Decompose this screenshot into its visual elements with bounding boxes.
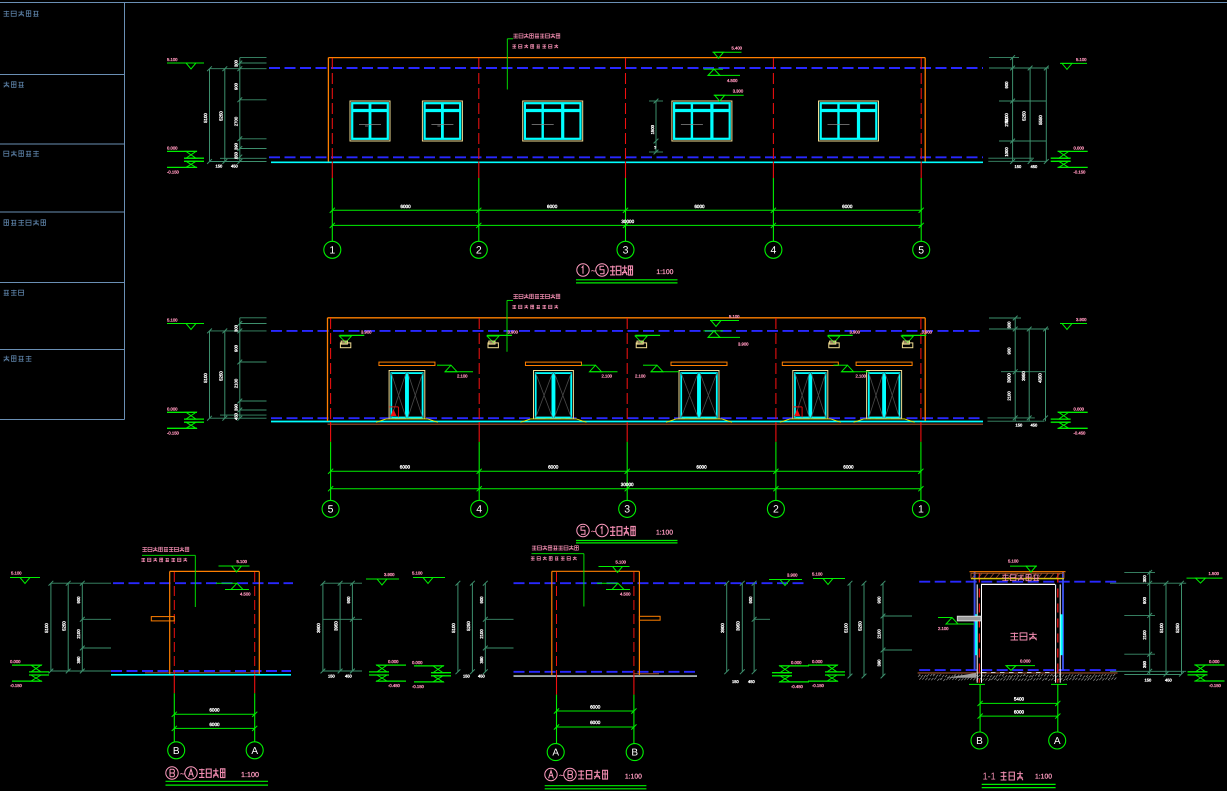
svg-text:450: 450 (1165, 678, 1172, 683)
svg-text:2.100: 2.100 (635, 374, 646, 379)
svg-text:1-1: 1-1 (983, 772, 996, 783)
svg-text:3950: 3950 (736, 621, 741, 631)
svg-text:150: 150 (463, 674, 470, 679)
svg-text:3900: 3900 (316, 623, 321, 633)
svg-text:900: 900 (1007, 347, 1012, 355)
svg-text:2: 2 (773, 504, 779, 516)
svg-text:2.100: 2.100 (602, 374, 613, 379)
svg-text:3: 3 (624, 504, 630, 516)
svg-text:3.900: 3.900 (361, 329, 372, 334)
svg-text:2.100: 2.100 (457, 374, 468, 379)
svg-text:5.100: 5.100 (1076, 57, 1087, 62)
svg-text:5.100: 5.100 (11, 571, 22, 576)
svg-text:3.900: 3.900 (738, 342, 749, 347)
svg-text:3: 3 (623, 245, 629, 257)
svg-text:3900: 3900 (1007, 373, 1012, 383)
svg-text:5400: 5400 (1014, 697, 1025, 702)
svg-text:150: 150 (328, 674, 335, 679)
svg-text:900: 900 (234, 82, 239, 90)
svg-text:0.000: 0.000 (1020, 659, 1031, 664)
svg-text:900: 900 (234, 344, 239, 352)
svg-text:1: 1 (918, 504, 924, 516)
svg-text:5: 5 (918, 245, 924, 257)
svg-text:5100: 5100 (44, 623, 49, 633)
svg-text:150: 150 (1016, 422, 1023, 427)
svg-text:5.100: 5.100 (1008, 559, 1019, 564)
svg-text:-0.150: -0.150 (1209, 683, 1222, 688)
svg-text:900: 900 (1142, 596, 1147, 604)
svg-text:450: 450 (1031, 164, 1038, 169)
svg-text:2700: 2700 (234, 116, 239, 126)
svg-text:150: 150 (1015, 164, 1022, 169)
svg-text:6000: 6000 (694, 204, 705, 209)
svg-text:4.500: 4.500 (240, 592, 251, 597)
svg-text:3.900: 3.900 (1076, 317, 1087, 322)
svg-text:3950: 3950 (334, 621, 339, 631)
svg-text:5250: 5250 (858, 621, 863, 631)
svg-text:1:100: 1:100 (656, 269, 673, 276)
svg-text:2700: 2700 (1004, 117, 1009, 127)
svg-text:450: 450 (345, 674, 352, 679)
svg-text:30000: 30000 (621, 219, 634, 224)
svg-text:0.000: 0.000 (412, 660, 423, 665)
svg-text:390: 390 (877, 659, 882, 667)
svg-text:1:100: 1:100 (241, 770, 259, 779)
svg-text:450: 450 (478, 674, 485, 679)
svg-text:0.000: 0.000 (1209, 659, 1220, 664)
svg-text:4.500: 4.500 (727, 78, 738, 83)
svg-text:5550: 5550 (1038, 115, 1043, 125)
svg-text:1500: 1500 (650, 124, 655, 134)
svg-text:5.100: 5.100 (167, 318, 178, 323)
svg-text:~: ~ (180, 770, 185, 779)
svg-text:3.900: 3.900 (922, 329, 933, 334)
svg-text:150: 150 (1145, 678, 1152, 683)
svg-text:0.000: 0.000 (388, 659, 399, 664)
svg-text:6000: 6000 (842, 204, 853, 209)
svg-text:5.100: 5.100 (412, 571, 423, 576)
svg-text:150: 150 (216, 164, 223, 169)
svg-text:6000: 6000 (590, 704, 601, 709)
svg-text:2100: 2100 (234, 378, 239, 388)
svg-text:5250: 5250 (219, 371, 224, 381)
svg-text:0.000: 0.000 (167, 406, 178, 411)
svg-text:300: 300 (234, 59, 239, 67)
svg-text:0.000: 0.000 (1074, 406, 1085, 411)
svg-text:1000: 1000 (1004, 147, 1009, 157)
svg-text:390: 390 (234, 403, 239, 411)
svg-text:6000: 6000 (400, 465, 411, 470)
svg-text:3.900: 3.900 (850, 329, 861, 334)
svg-text:5.100: 5.100 (812, 572, 823, 577)
svg-text:300: 300 (1142, 575, 1147, 583)
svg-text:450: 450 (748, 679, 755, 684)
svg-text:150: 150 (732, 679, 739, 684)
svg-text:0.000: 0.000 (1074, 145, 1085, 150)
svg-text:6000: 6000 (547, 204, 558, 209)
svg-text:3.900: 3.900 (384, 572, 395, 577)
svg-text:900: 900 (479, 596, 484, 604)
svg-text:0.000: 0.000 (812, 659, 823, 664)
svg-text:0.000: 0.000 (10, 659, 21, 664)
svg-text:390: 390 (1142, 660, 1147, 668)
svg-text:-0.150: -0.150 (412, 684, 425, 689)
svg-text:2100: 2100 (76, 629, 81, 639)
svg-text:2: 2 (476, 245, 482, 257)
svg-text:5100: 5100 (844, 623, 849, 633)
svg-text:5: 5 (328, 504, 334, 516)
svg-text:5250: 5250 (466, 621, 471, 631)
svg-text:6000: 6000 (400, 204, 411, 209)
svg-text:2.100: 2.100 (856, 374, 867, 379)
svg-text:5.100: 5.100 (616, 560, 627, 565)
svg-text:300: 300 (234, 324, 239, 332)
svg-text:390: 390 (479, 656, 484, 664)
svg-text:5.400: 5.400 (732, 46, 743, 51)
svg-text:3900: 3900 (720, 623, 725, 633)
svg-text:2.100: 2.100 (938, 626, 949, 631)
svg-text:1:100: 1:100 (656, 530, 673, 537)
svg-text:3.900: 3.900 (787, 573, 798, 578)
svg-text:2100: 2100 (1142, 630, 1147, 640)
svg-text:5250: 5250 (219, 111, 224, 121)
svg-text:1:100: 1:100 (1035, 774, 1052, 781)
svg-text:A: A (1054, 736, 1061, 747)
svg-text:5100: 5100 (1159, 623, 1164, 633)
svg-text:6000: 6000 (209, 722, 220, 727)
svg-text:4350: 4350 (1038, 373, 1043, 383)
svg-text:-0.450: -0.450 (388, 683, 401, 688)
svg-text:5.100: 5.100 (729, 314, 740, 319)
svg-text:450: 450 (1031, 422, 1038, 427)
svg-text:1:100: 1:100 (625, 774, 642, 781)
svg-text:390: 390 (234, 142, 239, 150)
svg-text:6000: 6000 (209, 708, 220, 713)
svg-text:5250: 5250 (62, 621, 67, 631)
svg-text:3.900: 3.900 (508, 329, 519, 334)
svg-text:390: 390 (76, 656, 81, 664)
svg-text:3950: 3950 (1021, 371, 1026, 381)
svg-text:900: 900 (748, 596, 753, 604)
svg-text:850: 850 (234, 151, 239, 159)
svg-text:30000: 30000 (621, 482, 634, 487)
svg-text:-0.450: -0.450 (1074, 430, 1087, 435)
svg-text:-0.450: -0.450 (791, 684, 804, 689)
svg-text:6000: 6000 (696, 465, 707, 470)
svg-text:900: 900 (1004, 81, 1009, 89)
svg-text:4.500: 4.500 (620, 592, 631, 597)
svg-text:900: 900 (346, 596, 351, 604)
svg-text:2100: 2100 (479, 629, 484, 639)
svg-text:450: 450 (231, 164, 238, 169)
svg-text:2100: 2100 (877, 629, 882, 639)
svg-text:A: A (251, 746, 258, 757)
svg-text:-0.150: -0.150 (1074, 169, 1087, 174)
svg-text:6000: 6000 (843, 465, 854, 470)
svg-text:6000: 6000 (590, 720, 601, 725)
svg-text:3.300: 3.300 (733, 89, 744, 94)
svg-text:~: ~ (591, 267, 596, 276)
svg-text:5250: 5250 (1022, 111, 1027, 121)
svg-text:B: B (173, 746, 180, 757)
svg-text:5100: 5100 (451, 623, 456, 633)
svg-text:1: 1 (329, 245, 335, 257)
svg-text:-0.150: -0.150 (167, 169, 180, 174)
svg-text:900: 900 (877, 596, 882, 604)
svg-text:5.100: 5.100 (237, 559, 248, 564)
svg-text:2100: 2100 (1007, 391, 1012, 401)
svg-text:5.100: 5.100 (167, 57, 178, 62)
svg-text:~: ~ (559, 771, 564, 780)
svg-text:5100: 5100 (203, 373, 208, 383)
svg-text:5100: 5100 (203, 113, 208, 123)
svg-text:900: 900 (76, 596, 81, 604)
svg-text:0.000: 0.000 (167, 145, 178, 150)
svg-text:1.500: 1.500 (1209, 571, 1220, 576)
svg-text:300: 300 (1007, 321, 1012, 329)
svg-text:-0.150: -0.150 (167, 430, 180, 435)
svg-text:~: ~ (591, 527, 596, 536)
svg-text:-0.150: -0.150 (812, 683, 825, 688)
svg-text:B: B (631, 748, 638, 759)
svg-text:B: B (976, 736, 983, 747)
svg-text:-0.150: -0.150 (10, 683, 23, 688)
svg-text:6000: 6000 (548, 465, 559, 470)
svg-text:6000: 6000 (1014, 709, 1025, 714)
svg-text:450: 450 (234, 412, 239, 420)
svg-text:A: A (552, 748, 559, 759)
svg-text:5250: 5250 (1175, 623, 1180, 633)
svg-text:0.000: 0.000 (791, 660, 802, 665)
svg-text:4: 4 (476, 504, 482, 516)
svg-text:4: 4 (770, 245, 776, 257)
